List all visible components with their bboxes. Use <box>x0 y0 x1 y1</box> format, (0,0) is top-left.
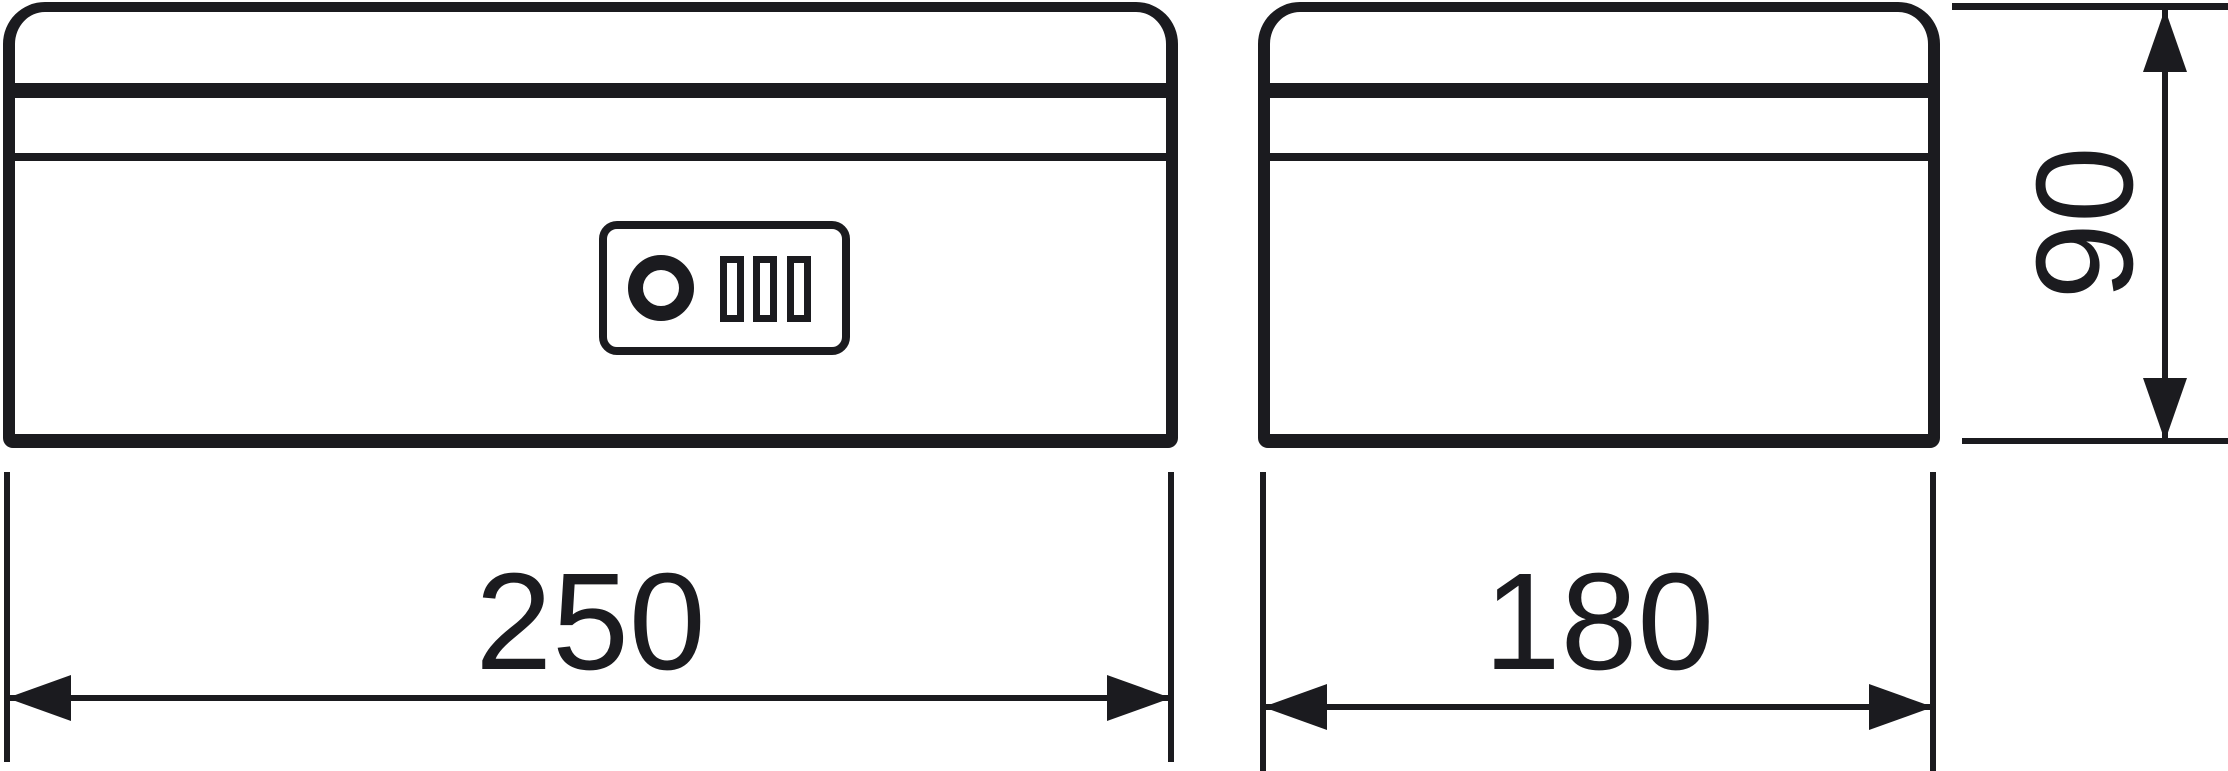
dim-height-extension-line-bottom <box>1962 438 2228 444</box>
front-lid-seam-line-thin <box>15 153 1166 161</box>
technical-drawing: 250 180 90 <box>0 0 2228 771</box>
dim-height-arrow-down-icon <box>2143 378 2187 441</box>
dial-bar-icon <box>787 256 811 322</box>
dim-width-label: 250 <box>3 553 1178 691</box>
lock-plate <box>599 221 850 355</box>
dim-height-dimension-line <box>2162 9 2168 438</box>
dial-bar-icon <box>720 256 744 322</box>
front-lid-seam-line-thick <box>15 83 1166 98</box>
side-lid-seam-line-thin <box>1270 153 1928 161</box>
dim-depth-dimension-line <box>1263 704 1933 710</box>
keyhole-icon <box>628 255 694 321</box>
dim-height-label: 90 <box>2016 123 2154 323</box>
dial-bar-icon <box>753 256 777 322</box>
dim-height-arrow-up-icon <box>2143 9 2187 72</box>
side-view-box <box>1258 2 1940 448</box>
front-view-box <box>3 2 1178 448</box>
side-lid-seam-line-thick <box>1270 83 1928 98</box>
dim-depth-label: 180 <box>1258 553 1940 691</box>
